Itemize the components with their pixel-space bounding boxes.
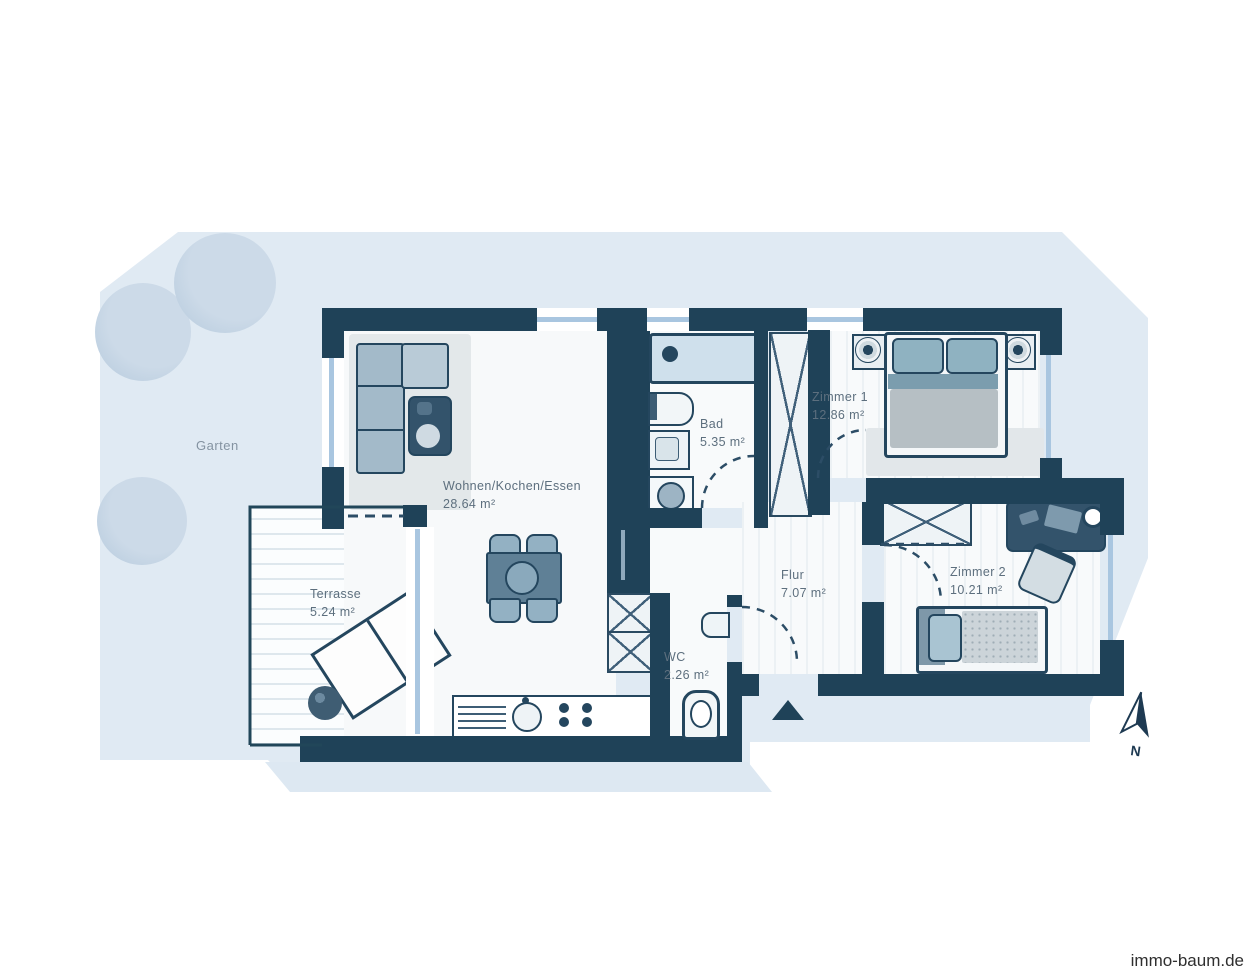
side-table-plate bbox=[416, 424, 440, 448]
bedside-lamp bbox=[855, 337, 881, 363]
room-area: 2.26 m² bbox=[664, 666, 709, 684]
wall-segment bbox=[742, 674, 759, 696]
room-name: Wohnen/Kochen/Essen bbox=[443, 477, 581, 495]
single-bed-mattress bbox=[962, 611, 1038, 663]
window-glass bbox=[647, 317, 689, 322]
north-arrow-icon bbox=[1121, 690, 1155, 737]
label-bad: Bad 5.35 m² bbox=[700, 415, 745, 451]
wall-segment bbox=[818, 674, 1124, 696]
entrance-marker bbox=[772, 700, 804, 720]
wc-toilet-bowl bbox=[690, 700, 712, 728]
sofa bbox=[356, 343, 405, 474]
dining-chair bbox=[526, 598, 558, 623]
window-glass bbox=[807, 317, 863, 322]
terrace-plant bbox=[308, 686, 342, 720]
burner bbox=[559, 703, 569, 713]
burner bbox=[582, 703, 592, 713]
burner bbox=[559, 717, 569, 727]
wall-segment bbox=[616, 308, 645, 530]
window-glass bbox=[329, 358, 334, 467]
builtin-wardrobe bbox=[769, 332, 812, 517]
bath-sink-basin bbox=[655, 437, 679, 461]
room-area: 10.21 m² bbox=[950, 581, 1006, 599]
label-wc: WC 2.26 m² bbox=[664, 648, 709, 684]
wall-segment bbox=[1040, 458, 1062, 482]
label-wohnen: Wohnen/Kochen/Essen 28.64 m² bbox=[443, 477, 581, 513]
wall-segment bbox=[300, 736, 742, 762]
dining-table-decor bbox=[505, 561, 539, 595]
bathtub-drain bbox=[662, 346, 678, 362]
stove bbox=[556, 700, 600, 730]
lounger-divider bbox=[366, 620, 408, 682]
wall-segment bbox=[322, 467, 344, 529]
bed-sheet-band bbox=[888, 374, 998, 389]
burner bbox=[582, 717, 592, 727]
bedside-lamp bbox=[1005, 337, 1031, 363]
wall-segment bbox=[1100, 640, 1124, 696]
wall-segment bbox=[754, 330, 768, 528]
kitchen-cabinet bbox=[607, 593, 654, 635]
wall-segment bbox=[640, 508, 702, 528]
room-name: Zimmer 2 bbox=[950, 563, 1006, 581]
corridor-floor bbox=[645, 528, 742, 598]
wall-segment bbox=[866, 478, 1124, 504]
label-terrasse: Terrasse 5.24 m² bbox=[310, 585, 361, 621]
room-area: 12.86 m² bbox=[812, 406, 868, 424]
sink-tap bbox=[522, 697, 529, 704]
pillow bbox=[946, 338, 998, 374]
dining-chair bbox=[489, 598, 521, 623]
sliding-door bbox=[406, 527, 434, 736]
wall-segment bbox=[808, 478, 818, 504]
wc-sink bbox=[701, 612, 730, 638]
wall-segment bbox=[1100, 478, 1124, 535]
wall-segment bbox=[322, 308, 537, 331]
room-area: 28.64 m² bbox=[443, 495, 581, 513]
kitchen-sink bbox=[512, 702, 542, 732]
tree bbox=[97, 477, 187, 565]
wall-segment bbox=[1040, 308, 1062, 355]
window-glass bbox=[537, 317, 597, 322]
room-name: Flur bbox=[781, 566, 826, 584]
room-area: 5.24 m² bbox=[310, 603, 361, 621]
label-zimmer1: Zimmer 1 12.86 m² bbox=[812, 388, 868, 424]
north-arrow-right bbox=[1135, 692, 1155, 738]
bed-blanket bbox=[890, 389, 998, 448]
dishwasher bbox=[458, 701, 506, 729]
wall-segment bbox=[727, 662, 742, 760]
wall-segment bbox=[727, 595, 742, 607]
wall-stub bbox=[403, 505, 427, 527]
room-name: Bad bbox=[700, 415, 745, 433]
room-name: Zimmer 1 bbox=[812, 388, 868, 406]
plant-on-table bbox=[417, 402, 432, 415]
window-glass bbox=[1108, 535, 1113, 640]
room-area: 7.07 m² bbox=[781, 584, 826, 602]
wall-segment bbox=[322, 308, 344, 358]
room-name: WC bbox=[664, 648, 709, 666]
room-name: Terrasse bbox=[310, 585, 361, 603]
wardrobe bbox=[880, 498, 972, 546]
sofa-chaise bbox=[401, 343, 449, 389]
kitchen-cabinet bbox=[607, 631, 654, 673]
wall-segment bbox=[862, 602, 884, 677]
wall-segment bbox=[863, 308, 1062, 331]
floorplan-page: Garten bbox=[0, 0, 1250, 977]
washing-machine-drum bbox=[657, 482, 685, 510]
label-zimmer2: Zimmer 2 10.21 m² bbox=[950, 563, 1006, 599]
wall-segment bbox=[862, 502, 884, 545]
north-arrow-left bbox=[1121, 690, 1141, 734]
room-area: 5.35 m² bbox=[700, 433, 745, 451]
garden-label: Garten bbox=[196, 438, 239, 453]
window-glass bbox=[1046, 355, 1051, 458]
tree bbox=[174, 233, 276, 333]
label-flur: Flur 7.07 m² bbox=[781, 566, 826, 602]
north-label: N bbox=[1130, 742, 1142, 759]
site-watermark: immo-baum.de bbox=[1131, 951, 1244, 971]
wall-segment bbox=[689, 308, 807, 331]
pillow bbox=[892, 338, 944, 374]
sliding-door-glass bbox=[415, 529, 420, 734]
pillow bbox=[928, 614, 962, 662]
bath-toilet-tank bbox=[650, 394, 657, 420]
